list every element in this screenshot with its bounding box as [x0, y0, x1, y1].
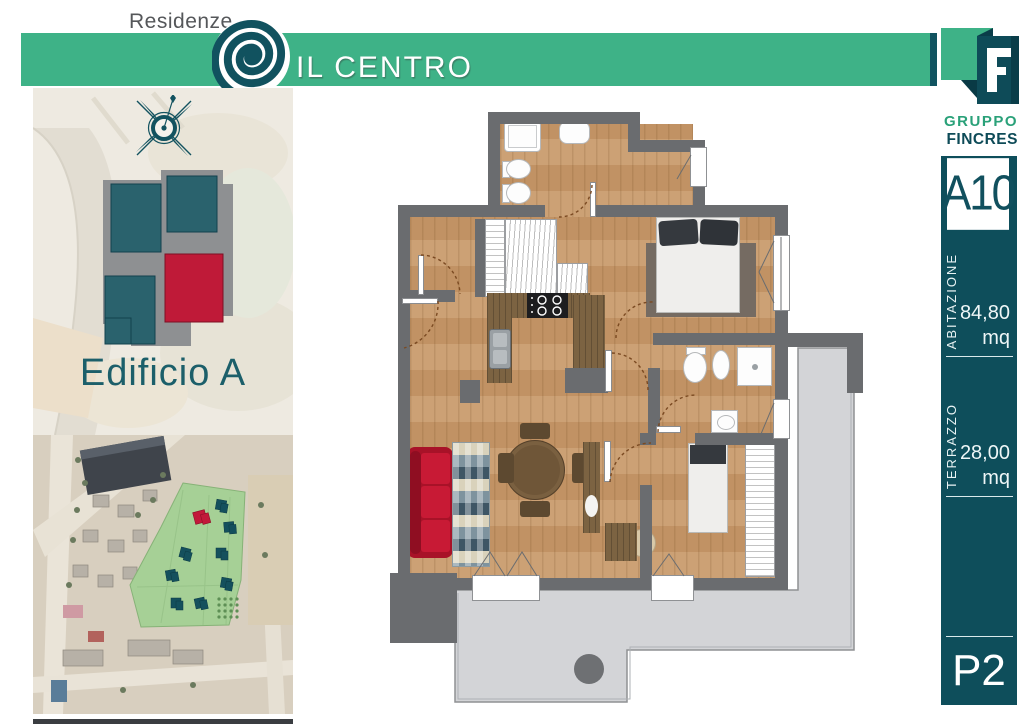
project-title: IL CENTRO: [296, 51, 473, 85]
area-value: 84,80 mq: [960, 301, 1010, 351]
plan-annotations: [390, 105, 910, 705]
building-label: Edificio A: [33, 352, 293, 395]
company-name: GRUPPO FINCRES: [936, 114, 1018, 148]
area-value-number: 84,80: [960, 301, 1010, 326]
area-value: 28,00 mq: [960, 441, 1010, 491]
floor-code-label: P2: [941, 637, 1017, 705]
floor-plan: [390, 105, 910, 705]
photo-edge-strip: [33, 719, 293, 724]
spacer: [941, 497, 1017, 637]
company-name-line1: GRUPPO: [936, 114, 1018, 131]
building-footprint-diagram: [91, 168, 236, 363]
highlighted-unit: [165, 254, 223, 322]
area-row-terrazzo: TERRAZZO 28,00 mq: [941, 357, 1017, 497]
area-value-unit: mq: [960, 466, 1010, 491]
area-label: TERRAZZO: [944, 403, 959, 489]
area-value-unit: mq: [960, 326, 1010, 351]
company-name-line2: FINCRES: [936, 131, 1018, 148]
fincres-f-logo-icon: [941, 26, 1019, 110]
brochure-page: Residenze IL CENTRO: [0, 0, 1024, 724]
area-row-abitazione: ABITAZIONE 84,80 mq: [941, 244, 1017, 357]
header-bar-end-cap: [930, 33, 937, 86]
unit-code-badge: A10: [947, 158, 1009, 230]
area-value-number: 28,00: [960, 441, 1010, 466]
aerial-photo-site: [33, 435, 293, 714]
area-label: ABITAZIONE: [944, 253, 959, 349]
unit-info-bar: A10 ABITAZIONE 84,80 mq TERRAZZO 28,00 m…: [941, 156, 1017, 705]
compass-rose-icon: [131, 95, 197, 161]
header-bar: [21, 33, 930, 86]
